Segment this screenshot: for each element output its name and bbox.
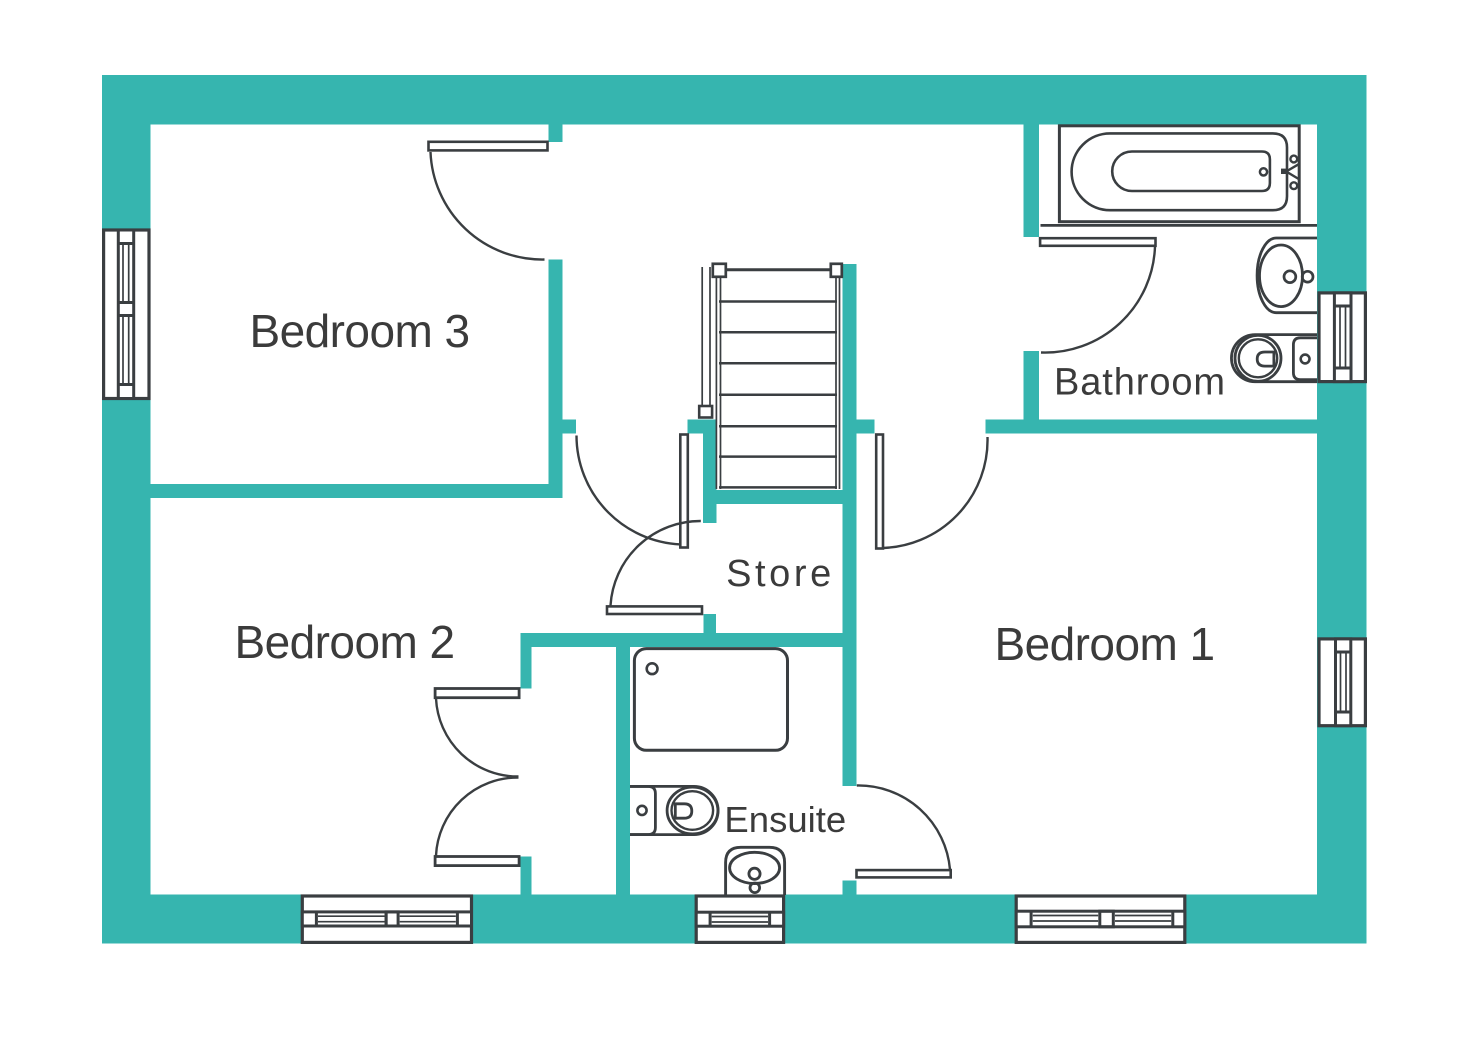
svg-text:Bedroom 1: Bedroom 1 bbox=[994, 618, 1214, 670]
svg-text:Bedroom 2: Bedroom 2 bbox=[234, 616, 454, 668]
svg-text:Bedroom 3: Bedroom 3 bbox=[249, 305, 469, 357]
svg-text:Store: Store bbox=[726, 553, 835, 595]
svg-text:Bathroom: Bathroom bbox=[1054, 362, 1226, 404]
svg-text:Ensuite: Ensuite bbox=[724, 799, 846, 840]
